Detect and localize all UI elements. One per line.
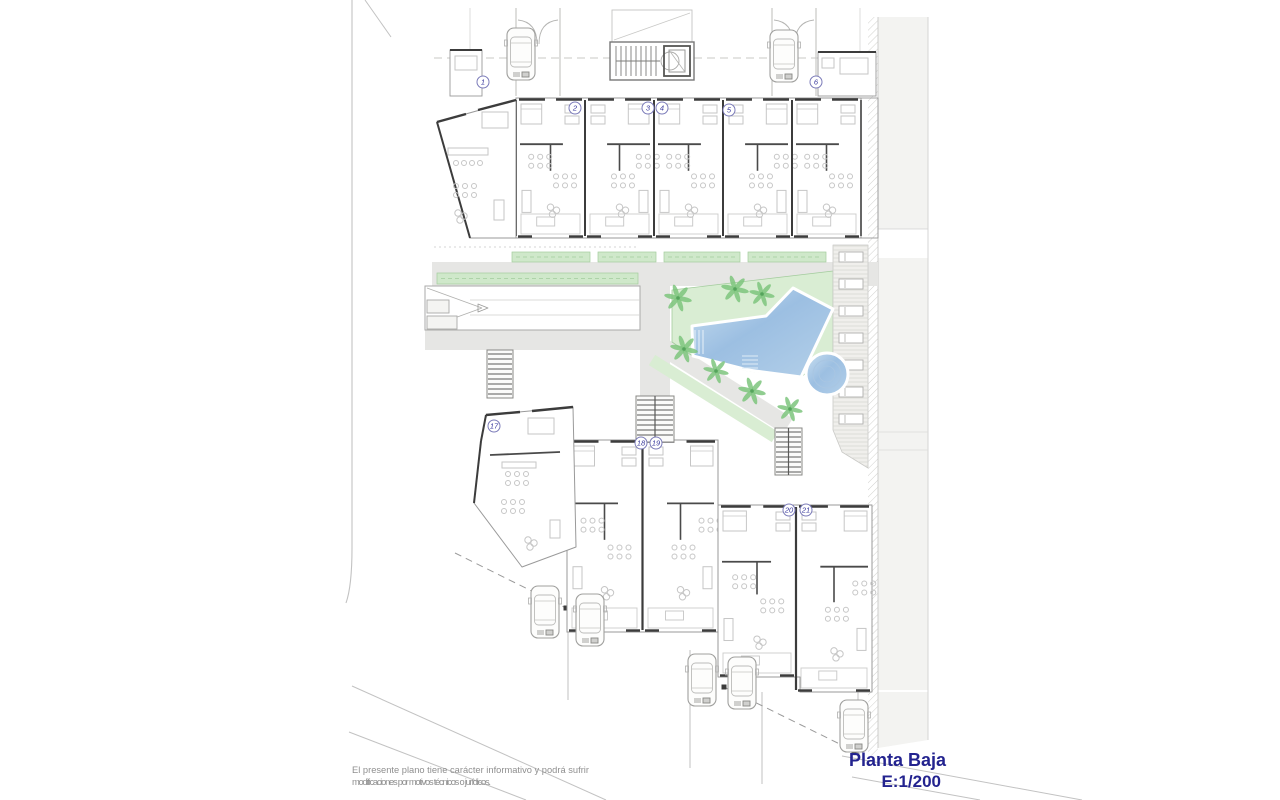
svg-text:18: 18 [637,439,646,448]
car-icon [505,28,538,80]
car-icon [686,654,719,706]
disclaimer-line-2: modificaciones por motivos técnicos o ju… [352,777,491,787]
unit-number-badge: 18 [635,437,647,449]
unit-number-badge: 5 [723,104,735,116]
svg-text:4: 4 [660,104,664,113]
svg-text:17: 17 [490,422,499,431]
svg-text:20: 20 [784,506,794,515]
svg-text:2: 2 [572,104,578,113]
car-icon [726,657,759,709]
unit-number-badge: 3 [642,102,654,114]
car-icon [768,30,801,82]
unit-number-badge: 19 [650,437,662,449]
unit-number-badge: 4 [656,102,668,114]
unit-number-badge: 20 [783,504,795,516]
floor-plan-sheet: 1234561718192021 Planta Baja E:1/200 El … [0,0,1280,800]
stair-icon [636,396,674,442]
plan-scale: E:1/200 [881,772,941,791]
svg-text:21: 21 [801,506,810,515]
stair-icon [487,350,513,398]
unit-number-badge: 1 [477,76,489,88]
svg-text:1: 1 [481,78,485,87]
plan-title: Planta Baja [849,750,947,770]
unit-number-badge: 17 [488,420,500,432]
unit-number-badge: 6 [810,76,822,88]
car-icon [574,594,607,646]
unit-number-badge: 21 [800,504,812,516]
site-plan-svg: 1234561718192021 Planta Baja E:1/200 El … [0,0,1280,800]
unit-number-badge: 2 [569,102,581,114]
car-icon [838,700,871,752]
car-icon [529,586,562,638]
svg-text:19: 19 [652,439,661,448]
stair-icon [775,428,802,475]
disclaimer-line-1: El presente plano tiene carácter informa… [352,765,589,775]
